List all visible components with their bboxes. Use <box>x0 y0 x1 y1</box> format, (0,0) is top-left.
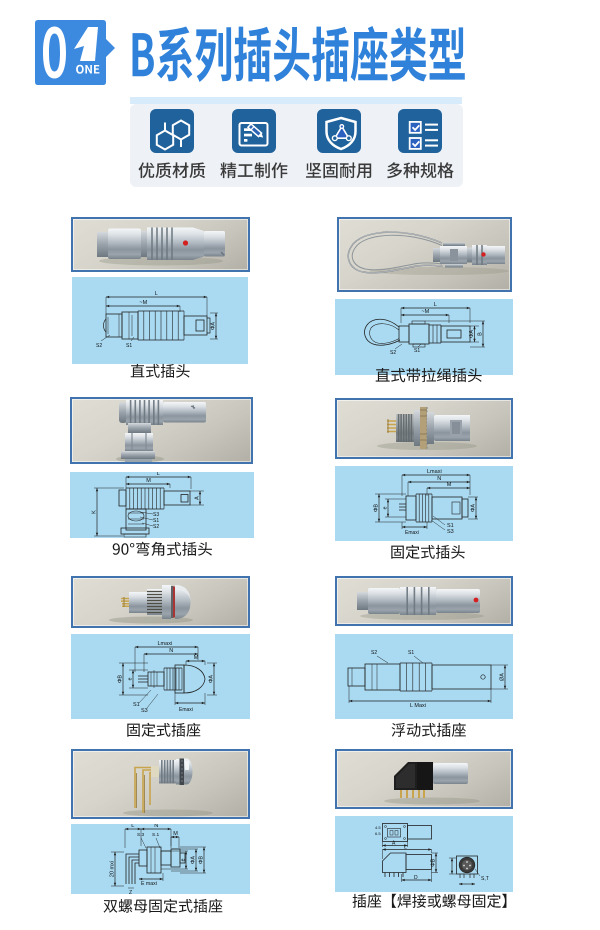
svg-text:E maxi: E maxi <box>141 881 157 887</box>
svg-text:M: M <box>146 478 151 484</box>
svg-text:N: N <box>169 648 173 654</box>
svg-text:L Maxi: L Maxi <box>410 703 426 709</box>
svg-text:e: e <box>181 858 187 861</box>
svg-text:ΦB: ΦB <box>431 858 437 866</box>
svg-text:S1: S1 <box>414 348 420 354</box>
svg-text:ΦA: ΦA <box>469 330 475 338</box>
svg-text:L: L <box>157 472 160 477</box>
svg-text:S2: S2 <box>371 650 377 656</box>
svg-text:e: e <box>383 506 389 509</box>
svg-text:S.3: S.3 <box>137 832 145 838</box>
svg-text:e: e <box>128 677 134 680</box>
svg-text:~M: ~M <box>139 300 147 306</box>
svg-text:20 mxi: 20 mxi <box>110 861 116 877</box>
svg-text:6.5: 6.5 <box>375 831 381 836</box>
svg-text:Z: Z <box>129 890 132 894</box>
svg-text:S3: S3 <box>447 529 454 535</box>
svg-text:ΦB: ΦB <box>118 675 124 683</box>
svg-text:Lmaxi: Lmaxi <box>158 641 173 647</box>
svg-text:ΦA: ΦA <box>471 504 477 512</box>
svg-text:L: L <box>434 302 437 308</box>
svg-text:S1: S1 <box>408 650 414 656</box>
svg-text:4.5: 4.5 <box>375 825 381 830</box>
svg-text:ΦA: ΦA <box>211 322 217 330</box>
svg-text:S2: S2 <box>153 524 159 530</box>
svg-text:S2: S2 <box>96 343 102 349</box>
svg-text:S1: S1 <box>133 702 140 708</box>
svg-text:ΦB: ΦB <box>374 504 380 512</box>
svg-text:K: K <box>92 510 98 514</box>
svg-text:S1: S1 <box>126 343 132 349</box>
svg-text:ΦA: ΦA <box>191 856 197 864</box>
svg-text:M: M <box>173 831 178 837</box>
svg-text:D: D <box>414 875 418 881</box>
svg-text:N: N <box>154 824 158 829</box>
svg-text:ØA: ØA <box>500 673 506 681</box>
svg-text:ΦA: ΦA <box>209 675 215 683</box>
svg-text:L: L <box>404 845 407 851</box>
svg-text:L: L <box>131 824 134 829</box>
svg-text:S,T: S,T <box>481 876 489 882</box>
svg-text:S.1: S.1 <box>152 832 160 838</box>
svg-text:Emaxi: Emaxi <box>405 530 419 536</box>
svg-text:S2: S2 <box>390 350 396 356</box>
svg-text:S3: S3 <box>141 708 148 714</box>
svg-text:Emaxi: Emaxi <box>179 707 193 713</box>
svg-text:B: B <box>478 332 484 336</box>
svg-text:~M: ~M <box>421 309 429 315</box>
svg-text:M: M <box>447 482 452 488</box>
svg-text:N: N <box>437 476 441 482</box>
svg-text:A: A <box>195 496 201 500</box>
svg-text:ΦB: ΦB <box>199 856 205 864</box>
svg-text:Lmaxi: Lmaxi <box>427 469 442 475</box>
svg-text:L: L <box>155 291 158 297</box>
